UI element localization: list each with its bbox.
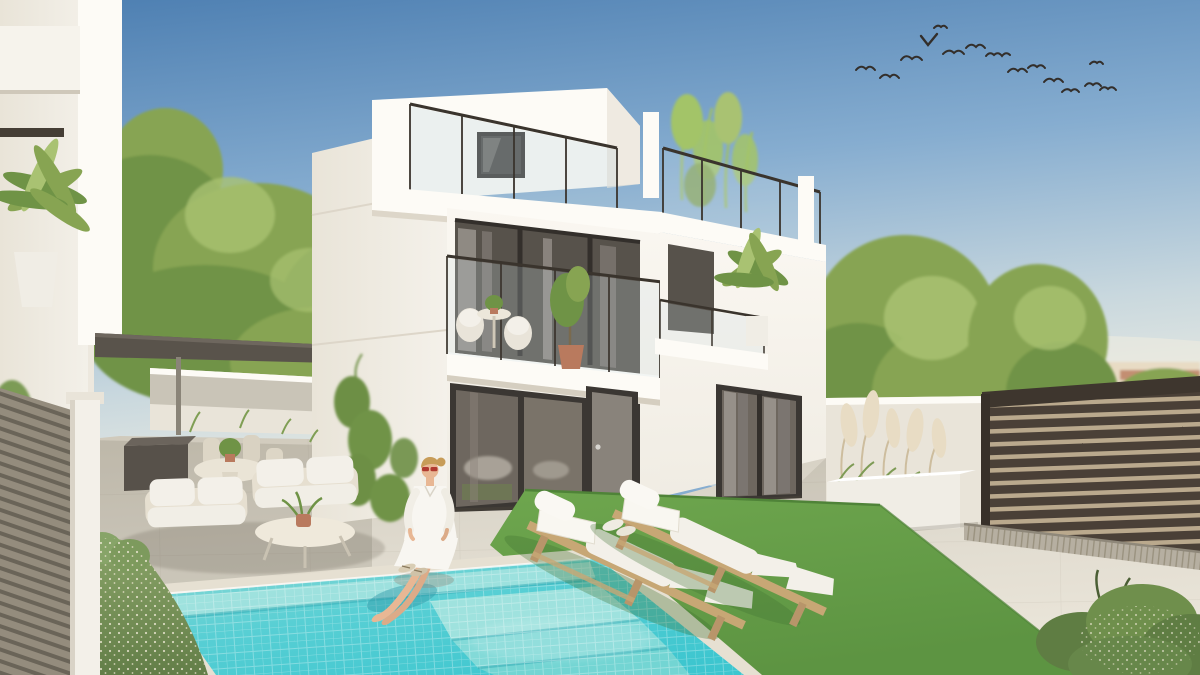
sofa-back-cushion	[197, 476, 243, 505]
villa	[312, 88, 826, 526]
neighbour-beam	[0, 26, 80, 92]
terrace-pillar	[798, 176, 814, 246]
ivy-leaves	[370, 474, 410, 522]
water-highlight	[470, 618, 650, 662]
table-plant-pot	[490, 308, 498, 314]
chair-cushion	[507, 317, 529, 335]
fence-slats	[0, 388, 78, 675]
table-plant-pot	[225, 454, 235, 462]
fence-post	[981, 394, 990, 530]
glass-streak	[470, 392, 478, 502]
scene-canvas	[0, 0, 1200, 675]
bamboo-foliage	[714, 92, 742, 144]
neighbour-railing	[0, 128, 64, 137]
dress-skirt	[394, 538, 458, 570]
lawn-reflection	[462, 484, 512, 500]
sofa-back-cushion	[256, 458, 304, 487]
villa-pool-render: Architectural 3D render of a modern thre…	[0, 0, 1200, 675]
palm-pot	[746, 316, 768, 346]
tree-highlight	[185, 177, 275, 253]
roof-pillar	[643, 112, 659, 198]
pillar-edge-shade	[70, 400, 75, 675]
ivy-leaves	[390, 438, 418, 478]
shrub-blossoms	[1080, 606, 1200, 674]
curtain	[738, 393, 748, 496]
sofa-back-cushion	[306, 455, 354, 484]
slider-mullion	[757, 394, 762, 496]
wing-curtain-slider	[716, 384, 802, 502]
sofa-back-cushion	[149, 478, 195, 507]
interior-reflection	[533, 461, 569, 479]
plant-foliage	[566, 266, 590, 302]
door-handle	[595, 444, 600, 449]
beam-shadow	[0, 90, 80, 94]
table-plant-pot	[296, 514, 311, 527]
curtain	[764, 397, 776, 495]
dining-chair	[243, 435, 260, 463]
slat-fence-right	[964, 376, 1200, 570]
planter-side	[960, 470, 976, 528]
downpipe	[176, 357, 181, 435]
slider-pane	[524, 397, 582, 502]
sofa-seat	[147, 504, 246, 527]
tree-highlight	[884, 276, 980, 360]
chair-cushion	[459, 309, 481, 327]
curtain	[724, 391, 736, 496]
neighbour-column	[78, 0, 122, 345]
sunglasses	[431, 467, 438, 471]
curtain	[778, 399, 790, 494]
sunglasses	[422, 467, 429, 471]
hair-bun	[437, 458, 446, 467]
slat-fence-left	[0, 388, 104, 675]
tree-highlight	[1014, 286, 1086, 350]
terracotta-pot	[558, 345, 584, 369]
